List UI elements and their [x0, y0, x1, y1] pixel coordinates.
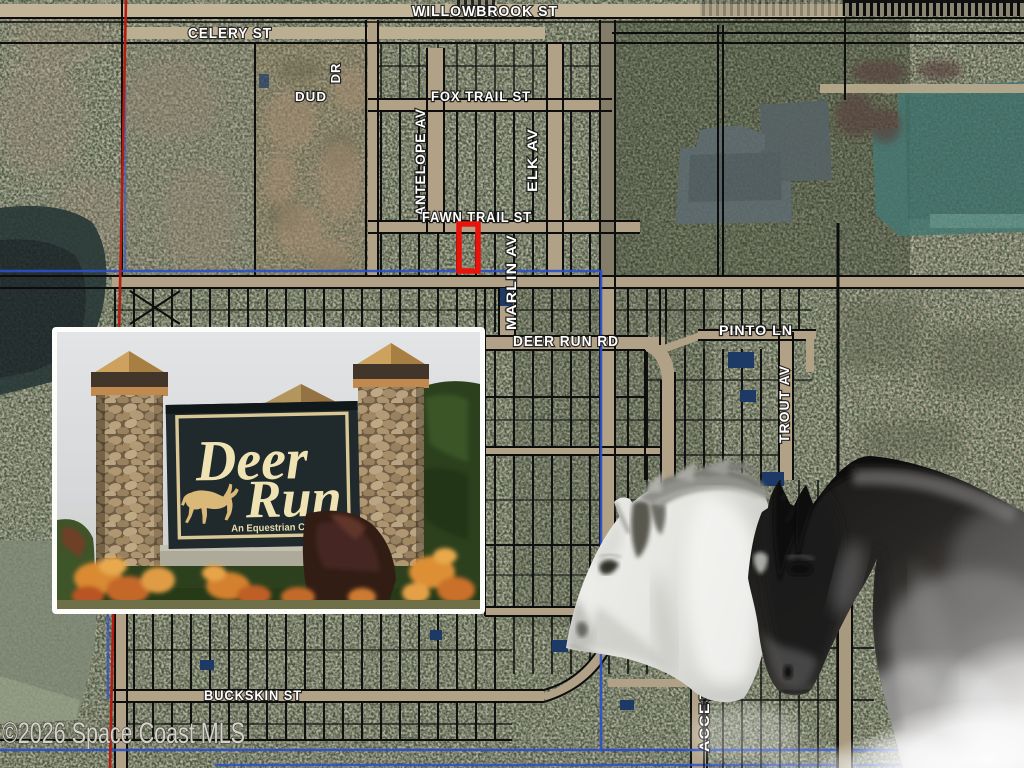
- svg-text:ELK AV: ELK AV: [524, 128, 540, 192]
- svg-text:DEER RUN RD: DEER RUN RD: [513, 334, 619, 350]
- svg-text:WILLOWBROOK ST: WILLOWBROOK ST: [412, 4, 558, 20]
- svg-text:PINTO LN: PINTO LN: [719, 322, 793, 338]
- svg-text:DUD: DUD: [295, 89, 327, 104]
- svg-text:ANTELOPE AV: ANTELOPE AV: [412, 108, 428, 216]
- svg-text:FOX TRAIL ST: FOX TRAIL ST: [431, 88, 531, 104]
- svg-text:CELERY ST: CELERY ST: [188, 26, 272, 42]
- svg-text:©2026 Space Coast MLS: ©2026 Space Coast MLS: [2, 717, 245, 750]
- svg-text:DR: DR: [328, 63, 343, 84]
- svg-text:BUCKSKIN ST: BUCKSKIN ST: [204, 687, 302, 703]
- svg-text:MARLIN AV: MARLIN AV: [503, 234, 519, 330]
- svg-text:TROUT AV: TROUT AV: [776, 365, 792, 443]
